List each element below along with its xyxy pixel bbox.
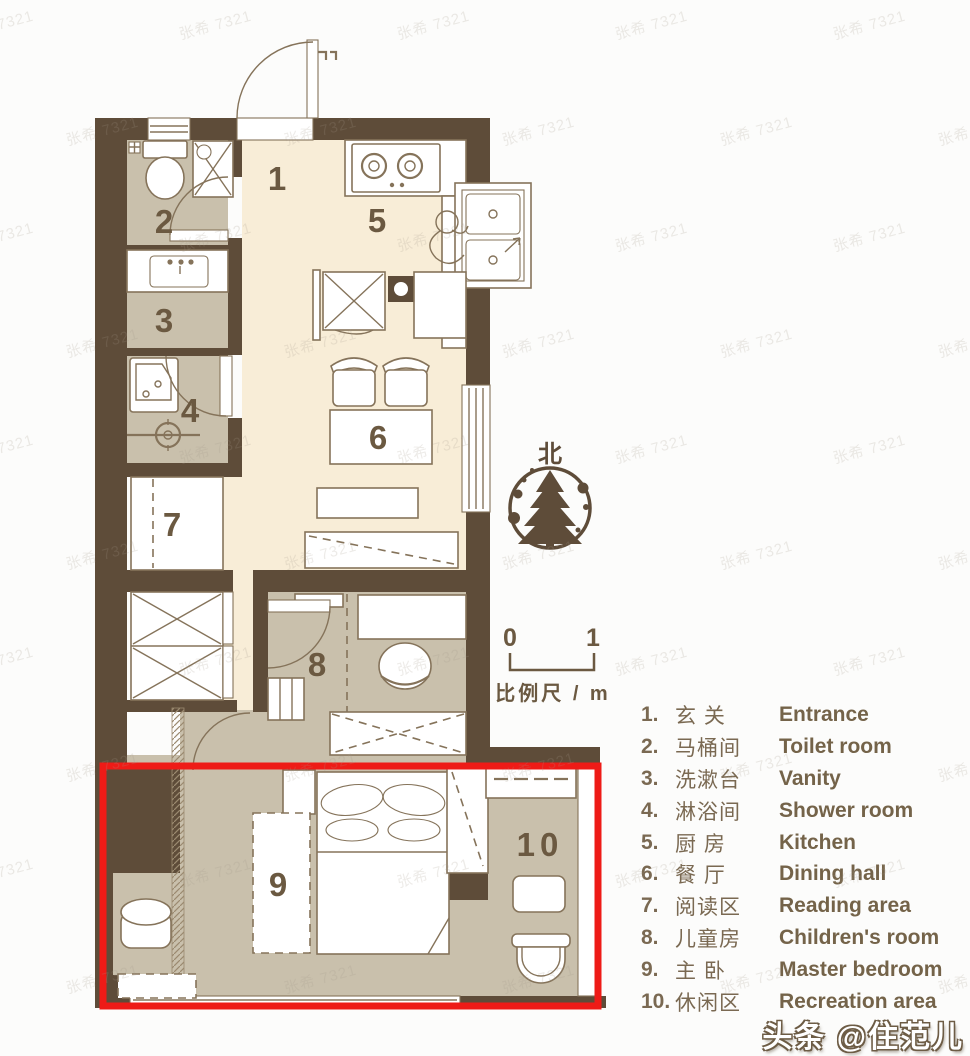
legend-chinese: 餐 厅 <box>675 859 779 889</box>
side-table <box>513 876 565 912</box>
scale-start: 0 <box>503 624 517 652</box>
desk-chair <box>379 643 431 689</box>
recreation-window <box>578 767 597 996</box>
legend-number: 2. <box>641 735 675 759</box>
legend-number: 7. <box>641 894 675 918</box>
legend-english: Entrance <box>779 703 967 727</box>
legend-row: 4. 淋浴间 Shower room <box>641 795 967 827</box>
room-number-2: 2 <box>155 203 173 240</box>
room-number-4: 4 <box>181 392 200 429</box>
legend-english: Kitchen <box>779 831 967 855</box>
accordion-door <box>172 708 184 996</box>
legend-english: Shower room <box>779 799 967 823</box>
legend-number: 8. <box>641 926 675 950</box>
legend-english: Vanity <box>779 767 967 791</box>
legend-row: 9. 主 卧 Master bedroom <box>641 954 967 986</box>
north-label: 北 <box>538 441 562 468</box>
legend-number: 6. <box>641 862 675 886</box>
legend-row: 8. 儿童房 Children's room <box>641 922 967 954</box>
toilet-door-leaf <box>170 230 228 241</box>
legend-chinese: 马桶间 <box>675 732 779 762</box>
vanity-fixtures <box>127 250 228 292</box>
dining-chair <box>383 358 429 406</box>
legend-row: 3. 洗漱台 Vanity <box>641 763 967 795</box>
bench <box>317 488 418 518</box>
toilet-tank <box>143 141 187 158</box>
scale-bracket <box>510 653 594 670</box>
legend-chinese: 淋浴间 <box>675 796 779 826</box>
legend-chinese: 阅读区 <box>675 891 779 921</box>
mirror-closet <box>447 767 488 873</box>
legend-english: Reading area <box>779 894 967 918</box>
dining-chair <box>331 358 377 406</box>
credit-watermark: 头条 @住范儿 <box>762 1012 964 1056</box>
legend-row: 1. 玄 关 Entrance <box>641 699 967 731</box>
legend-chinese: 厨 房 <box>675 828 779 858</box>
hall-closet <box>131 592 233 700</box>
room-number-7: 7 <box>163 506 181 543</box>
legend-number: 1. <box>641 703 675 727</box>
legend-number: 10. <box>641 990 675 1014</box>
scale-end: 1 <box>586 624 600 652</box>
shower-cabinet <box>193 141 233 197</box>
floorplan-page: 张希 7321张希 7321张希 7321张希 7321张希 7321张希 73… <box>0 0 970 1056</box>
room-legend: 1. 玄 关 Entrance 2. 马桶间 Toilet room 3. 洗漱… <box>641 699 967 1018</box>
legend-english: Toilet room <box>779 735 967 759</box>
toilet-bowl <box>146 157 184 199</box>
legend-chinese: 玄 关 <box>675 700 779 730</box>
legend-english: Children's room <box>779 926 967 950</box>
legend-number: 9. <box>641 958 675 982</box>
room-number-10: 10 <box>517 826 564 863</box>
scale-bar: 0 1 比例尺 / m <box>495 624 610 705</box>
room-number-9: 9 <box>269 866 287 903</box>
legend-english: Dining hall <box>779 862 967 886</box>
cooktop <box>352 144 440 192</box>
legend-chinese: 儿童房 <box>675 923 779 953</box>
radiator <box>486 768 576 798</box>
room-number-3: 3 <box>155 302 173 339</box>
stool <box>121 899 171 948</box>
counter-edge <box>313 270 320 340</box>
room-number-8: 8 <box>308 646 326 683</box>
shower-door-leaf <box>220 356 232 416</box>
legend-row: 7. 阅读区 Reading area <box>641 890 967 922</box>
child-door-leaf <box>268 600 330 612</box>
north-indicator: 北 <box>508 441 590 548</box>
legend-english: Recreation area <box>779 990 967 1014</box>
legend-number: 3. <box>641 767 675 791</box>
entry-threshold <box>237 118 313 140</box>
legend-chinese: 洗漱台 <box>675 764 779 794</box>
legend-row: 5. 厨 房 Kitchen <box>641 827 967 859</box>
room-number-1: 1 <box>268 160 286 197</box>
legend-number: 4. <box>641 799 675 823</box>
room-number-5: 5 <box>368 202 386 239</box>
room-number-6: 6 <box>369 419 387 456</box>
legend-english: Master bedroom <box>779 958 967 982</box>
desk <box>358 595 466 639</box>
drawer-unit <box>268 678 304 720</box>
nightstand <box>283 770 315 814</box>
washer <box>323 272 385 334</box>
legend-row: 6. 餐 厅 Dining hall <box>641 858 967 890</box>
rug-dashed <box>118 974 196 998</box>
legend-chinese: 主 卧 <box>675 955 779 985</box>
legend-number: 5. <box>641 831 675 855</box>
double-bed <box>317 772 449 954</box>
storage-bed <box>330 712 466 755</box>
entry-door <box>237 40 336 118</box>
lower-counter <box>414 272 466 338</box>
scale-caption: 比例尺 / m <box>495 681 610 705</box>
toilet-window <box>148 118 190 140</box>
legend-row: 2. 马桶间 Toilet room <box>641 731 967 763</box>
